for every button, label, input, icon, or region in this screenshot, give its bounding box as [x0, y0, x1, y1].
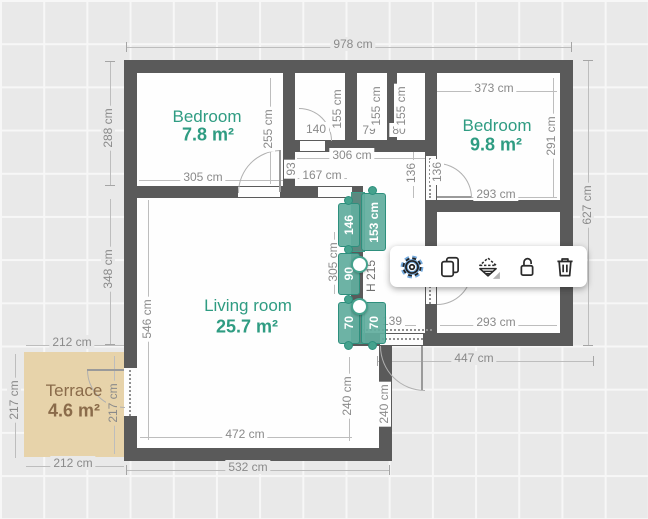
duplicate-button[interactable]	[434, 251, 466, 283]
dim-terrace-top: 212 cm	[49, 335, 94, 349]
room-area-bedroom2: 9.8 m²	[470, 135, 522, 156]
settings-icon	[399, 254, 425, 280]
duplicate-icon	[437, 254, 463, 280]
dim-living-bottom: 472 cm	[222, 427, 267, 441]
door-leaf-bedroom1	[279, 150, 281, 192]
dim-bed2-right: 291 cm	[544, 113, 558, 158]
door-leaf-bedroom2	[437, 196, 471, 198]
room-label-bedroom2[interactable]: Bedroom	[463, 116, 532, 136]
dim-tick	[377, 356, 378, 366]
terrace-door-marker	[129, 370, 131, 416]
room-area-terrace: 4.6 m²	[48, 401, 100, 422]
floorplan-canvas: 978 cm 373 cm 288 cm 255 cm 140 155 cm 7…	[0, 0, 648, 519]
selection-knob[interactable]	[368, 341, 377, 350]
entrance-marker	[382, 338, 423, 340]
badge-value: 153 cm	[368, 202, 380, 243]
dim-left-mid: 348 cm	[101, 246, 115, 291]
selection-handle-bottom[interactable]	[351, 298, 368, 315]
dim-right-total: 627 cm	[580, 182, 594, 227]
dim-tick	[126, 42, 127, 52]
selection-handle-top[interactable]	[351, 256, 368, 273]
dim-terrace-left: 217 cm	[7, 377, 21, 422]
unlock-icon	[514, 254, 540, 280]
unlock-button[interactable]	[511, 251, 543, 283]
dim-bed2-top: 373 cm	[471, 81, 516, 95]
dim-living-left: 546 cm	[140, 296, 154, 341]
delete-button[interactable]	[549, 251, 581, 283]
settings-button[interactable]	[396, 251, 428, 283]
room-area-living: 25.7 m²	[216, 317, 278, 338]
selection-badge-window-main[interactable]: 153 cm	[361, 193, 386, 251]
dim-tick	[389, 465, 390, 475]
dim-closet3-height: 155 cm	[394, 83, 408, 128]
dim-living-right2: 240 cm	[377, 381, 391, 426]
dim-closet1-height: 155 cm	[330, 86, 344, 131]
dim-closet2-height: 155 cm	[369, 83, 383, 128]
wall-right[interactable]	[560, 60, 573, 346]
dim-hall-door2: 136	[430, 159, 444, 185]
selection-badge-seg-top[interactable]: 146	[338, 203, 360, 247]
flip-button[interactable]	[472, 251, 504, 283]
dim-total-width: 978 cm	[330, 37, 375, 51]
wall-bedroom1-right[interactable]	[283, 73, 295, 198]
dim-bed2-bottom: 293 cm	[473, 187, 518, 201]
selection-knob[interactable]	[344, 245, 353, 254]
room-label-terrace[interactable]: Terrace	[46, 381, 103, 401]
badge-value: 70	[368, 316, 380, 329]
dim-closet1-width: 140	[303, 122, 329, 136]
dim-bed1-left: 288 cm	[101, 105, 115, 150]
selection-knob[interactable]	[368, 186, 377, 195]
dim-tick	[105, 185, 115, 186]
wall-bedroom2-bottom[interactable]	[425, 200, 560, 212]
dim-tick	[571, 42, 572, 52]
dim-tick	[105, 61, 115, 62]
dim-bottom-left: 532 cm	[225, 460, 270, 474]
dim-bottom-right: 447 cm	[451, 351, 496, 365]
dim-terrace-bottom: 212 cm	[50, 456, 95, 470]
delete-icon	[552, 254, 578, 280]
door-leaf-entrance	[421, 346, 423, 390]
dim-tick	[583, 345, 593, 346]
dim-terrace-right: 217 cm	[106, 380, 120, 425]
dim-tick	[593, 356, 594, 366]
door-opening-closet	[300, 141, 325, 151]
selection-knob[interactable]	[344, 196, 353, 205]
wall-closet-divider1[interactable]	[345, 73, 357, 143]
room-area-bedroom1: 7.8 m²	[182, 125, 234, 146]
dim-hall-corridor: 167 cm	[299, 168, 344, 182]
flip-icon	[475, 254, 501, 280]
dim-tick	[583, 60, 593, 61]
dim-bed1-bottom: 305 cm	[180, 170, 225, 184]
dim-tick	[126, 465, 127, 475]
door-leaf-terrace	[87, 369, 124, 371]
room-label-living[interactable]: Living room	[204, 296, 292, 316]
dim-bed1-right: 255 cm	[261, 106, 275, 151]
dim-hall-top: 306 cm	[329, 148, 374, 162]
selection-knob[interactable]	[344, 341, 353, 350]
dim-corridor-height: 93	[284, 159, 298, 178]
badge-value: 146	[343, 215, 355, 235]
dim-room3-bottom: 293 cm	[473, 315, 518, 329]
dim-living-right1: 240 cm	[340, 373, 354, 418]
dim-hall-door1: 136	[404, 160, 418, 186]
wall-top[interactable]	[124, 60, 573, 73]
toolbar-pointer	[376, 255, 391, 275]
context-toolbar	[390, 246, 587, 287]
badge-value: 70	[343, 316, 355, 329]
